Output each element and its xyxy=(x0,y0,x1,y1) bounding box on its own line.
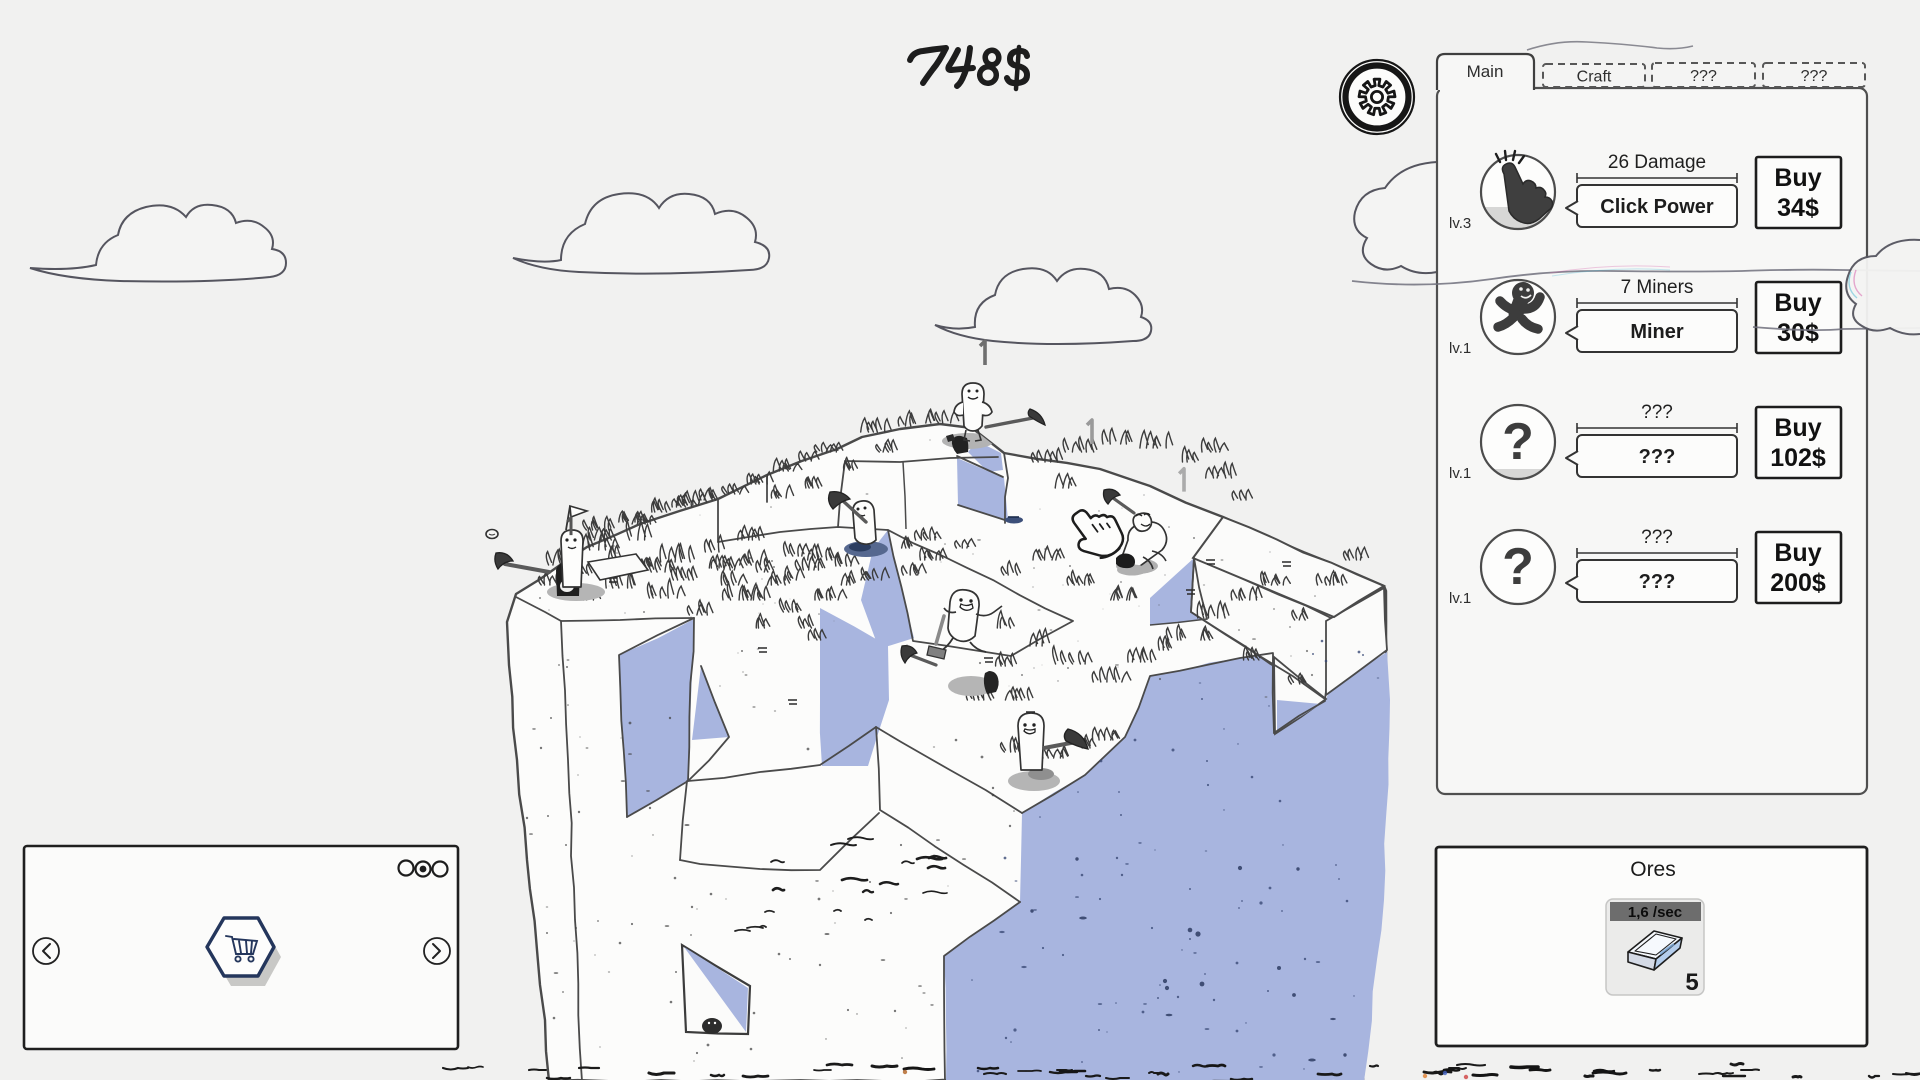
svg-text:lv.3: lv.3 xyxy=(1449,215,1471,232)
svg-text:Buy: Buy xyxy=(1774,289,1821,317)
svg-text:Craft: Craft xyxy=(1577,69,1612,86)
svg-text:lv.1: lv.1 xyxy=(1449,340,1471,357)
svg-text:1,6 /sec: 1,6 /sec xyxy=(1628,904,1682,921)
svg-text:???: ??? xyxy=(1641,402,1673,423)
svg-text:102$: 102$ xyxy=(1770,444,1826,472)
svg-text:?: ? xyxy=(1502,413,1534,471)
svg-text:Buy: Buy xyxy=(1774,539,1821,567)
svg-text:???: ??? xyxy=(1801,68,1828,85)
svg-text:???: ??? xyxy=(1639,446,1676,468)
svg-text:lv.1: lv.1 xyxy=(1449,465,1471,482)
svg-text:Miner: Miner xyxy=(1630,321,1684,343)
svg-text:???: ??? xyxy=(1641,527,1673,548)
svg-text:Buy: Buy xyxy=(1774,164,1821,192)
svg-text:7 Miners: 7 Miners xyxy=(1621,277,1694,298)
svg-text:Main: Main xyxy=(1467,62,1504,81)
svg-text:Buy: Buy xyxy=(1774,414,1821,442)
svg-text:Ores: Ores xyxy=(1630,858,1676,881)
svg-text:5: 5 xyxy=(1685,969,1698,996)
svg-text:?: ? xyxy=(1502,538,1534,596)
svg-text:Click Power: Click Power xyxy=(1600,196,1714,218)
svg-text:34$: 34$ xyxy=(1777,194,1819,222)
svg-text:26 Damage: 26 Damage xyxy=(1608,152,1706,173)
svg-text:30$: 30$ xyxy=(1777,319,1819,347)
svg-text:200$: 200$ xyxy=(1770,569,1826,597)
svg-text:???: ??? xyxy=(1639,571,1676,593)
svg-text:lv.1: lv.1 xyxy=(1449,590,1471,607)
svg-text:???: ??? xyxy=(1690,68,1717,85)
